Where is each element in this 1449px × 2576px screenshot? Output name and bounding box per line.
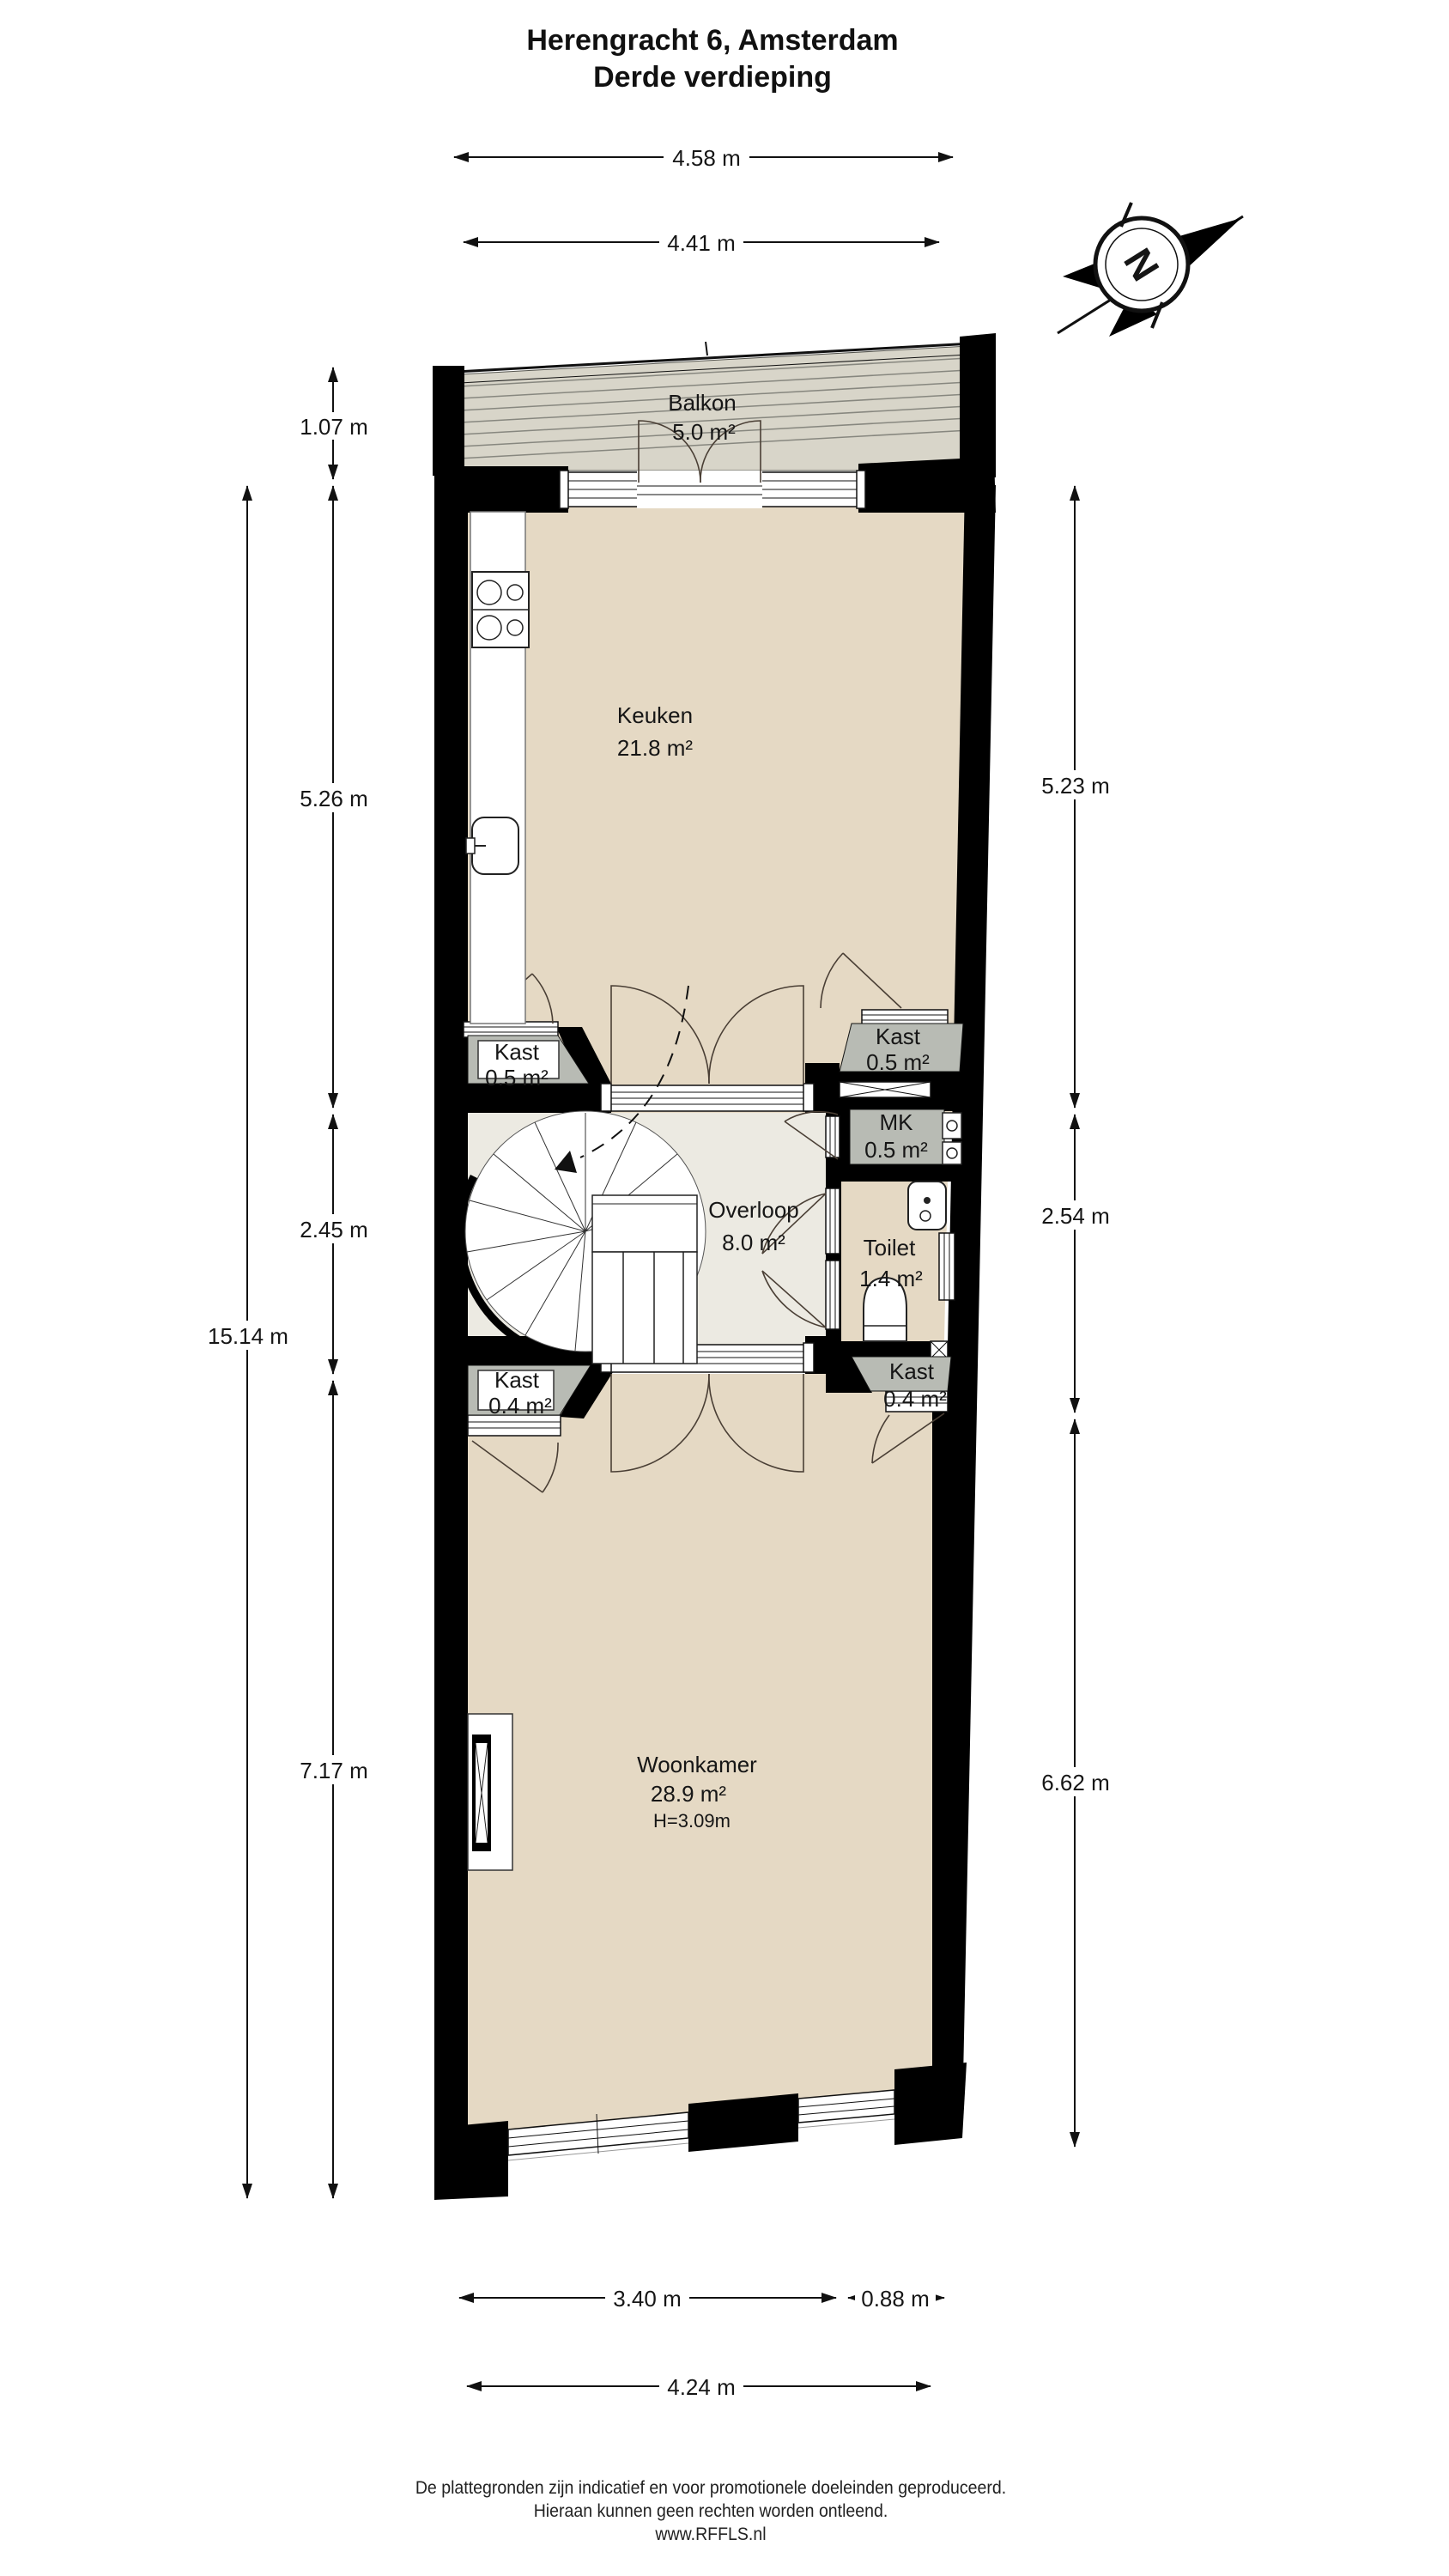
keuken-area: 21.8 m² — [617, 735, 693, 761]
floorplan-page: Herengracht 6, Amsterdam Derde verdiepin… — [0, 0, 1449, 2576]
disclaimer-line1: De plattegronden zijn indicatief en voor… — [50, 2476, 1372, 2500]
dim-top-inner: 4.41 m — [667, 230, 736, 256]
floorplan-drawing: N — [0, 0, 1449, 2576]
woonkamer-area: 28.9 m² — [651, 1781, 726, 1807]
meter-boxes-icon — [943, 1113, 961, 1164]
balkon-label: Balkon — [668, 390, 737, 416]
kast-keuken-links-area: 0.5 m² — [485, 1065, 549, 1091]
toilet-area: 1.4 m² — [859, 1266, 923, 1291]
dim-left-keuken: 5.26 m — [300, 786, 368, 811]
woonkamer-ceiling-height: H=3.09m — [653, 1810, 731, 1832]
wall-bottom-right-corner — [894, 2063, 967, 2145]
keuken-overloop-threshold — [601, 1084, 814, 1111]
overloop-area: 8.0 m² — [722, 1230, 785, 1255]
shaft-square-icon — [931, 1341, 948, 1358]
toilet-door-opening-lower — [826, 1261, 840, 1329]
kast-woonkamer-rechts-label: Kast — [889, 1358, 935, 1384]
dim-bottom-inner: 4.24 m — [667, 2374, 736, 2400]
kast-woonkamer-links-label: Kast — [494, 1367, 540, 1393]
woonkamer-label: Woonkamer — [637, 1752, 757, 1777]
toilet-sink-icon — [908, 1182, 946, 1230]
balkon-post-right — [960, 333, 996, 477]
website-url: www.RFFLS.nl — [50, 2523, 1372, 2546]
disclaimer-line2: Hieraan kunnen geen rechten worden ontle… — [50, 2500, 1372, 2523]
dim-bottom-right: 0.88 m — [861, 2286, 930, 2312]
balkon-post-left — [433, 366, 464, 476]
toilet-exterior-window — [939, 1233, 955, 1300]
dim-left-woonkamer: 7.17 m — [300, 1758, 368, 1783]
balkon-area: 5.0 m² — [672, 419, 736, 445]
kast-keuken-rechts-area: 0.5 m² — [866, 1049, 930, 1075]
kitchen-sink-icon — [466, 817, 518, 874]
kast-woonkamer-rechts-area: 0.4 m² — [883, 1386, 947, 1412]
dim-left-total: 15.14 m — [208, 1323, 288, 1349]
mk-area: 0.5 m² — [864, 1137, 928, 1163]
dim-left-balkon: 1.07 m — [300, 414, 368, 440]
dim-top-outer: 4.58 m — [672, 145, 741, 171]
kast-keuken-links-label: Kast — [494, 1039, 540, 1065]
keuken-label: Keuken — [617, 702, 693, 728]
overloop-label: Overloop — [708, 1197, 799, 1223]
wall-top-right — [858, 457, 996, 513]
toilet-door-opening-upper — [826, 1188, 840, 1254]
dim-right-overloop: 2.54 m — [1041, 1203, 1110, 1229]
wall-mk-bottom — [826, 1164, 965, 1182]
dim-right-woonkamer: 6.62 m — [1041, 1770, 1110, 1795]
dim-right-keuken: 5.23 m — [1041, 773, 1110, 799]
toilet-label: Toilet — [864, 1235, 916, 1261]
wall-top-left — [434, 466, 568, 513]
kast-woonkamer-links-area: 0.4 m² — [488, 1393, 552, 1419]
wall-bottom-left-corner — [434, 2121, 508, 2200]
stove-icon — [472, 572, 529, 647]
kast-keuken-rechts-label: Kast — [876, 1024, 921, 1049]
shaft-window — [840, 1082, 931, 1097]
fireplace-icon — [468, 1714, 512, 1870]
mk-label: MK — [880, 1109, 914, 1135]
dim-left-overloop: 2.45 m — [300, 1217, 368, 1242]
dim-bottom-window: 3.40 m — [613, 2286, 682, 2312]
disclaimer: De plattegronden zijn indicatief en voor… — [50, 2476, 1372, 2546]
compass-rose-icon: N — [1058, 203, 1243, 337]
